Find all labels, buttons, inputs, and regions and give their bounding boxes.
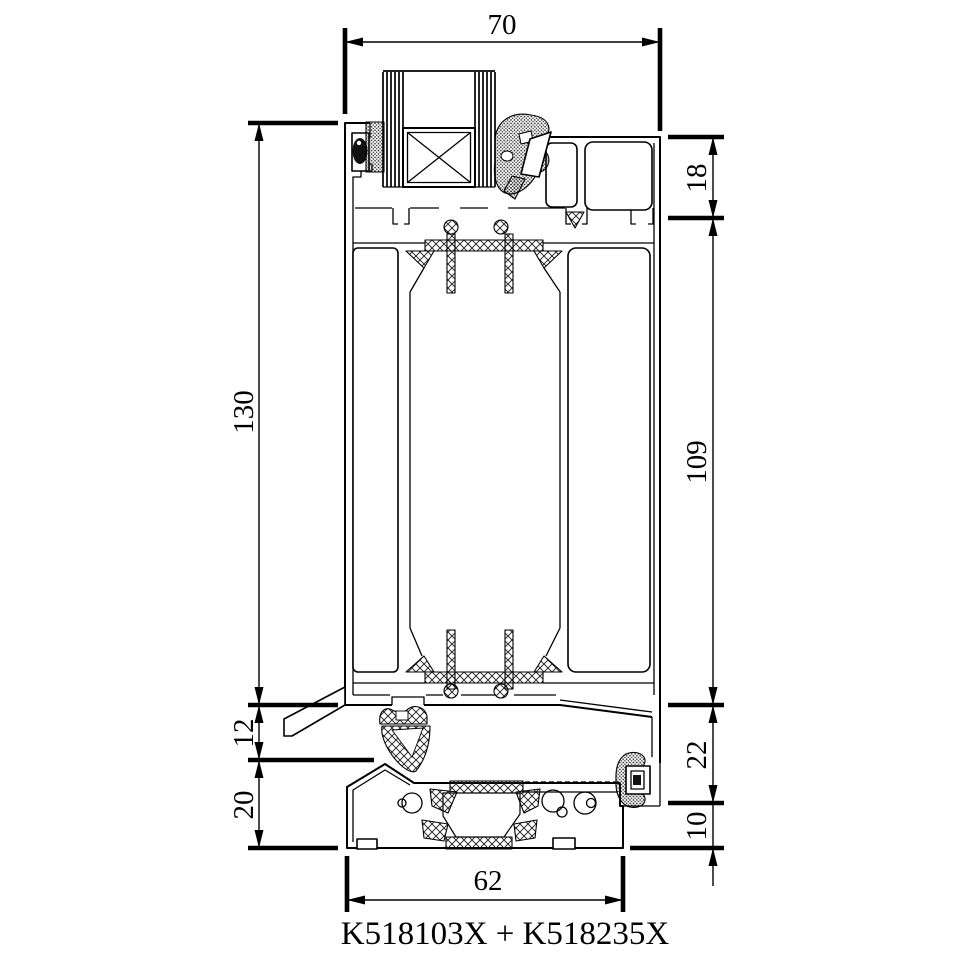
spacer-bar — [403, 128, 475, 187]
gasket-clip — [626, 766, 650, 794]
chamber-right — [568, 248, 650, 672]
screw-port-right-a — [542, 790, 564, 812]
foot-notch-left — [357, 839, 377, 849]
thermal-break-bottom — [406, 630, 562, 698]
foot-notch-right — [553, 838, 575, 849]
spacer-cross — [408, 133, 471, 183]
drawing-title: K518103X + K518235X — [341, 916, 670, 952]
center-gasket — [380, 707, 430, 772]
dim-upstand-height: 22 — [681, 741, 713, 770]
threshold-inner-wall — [353, 770, 410, 842]
screw-port-right-b — [574, 792, 596, 814]
dim-threshold-width: 62 — [474, 865, 503, 897]
screw-port-left — [402, 793, 422, 813]
glass-pane-left — [383, 72, 403, 187]
profile-section-drawing: 70 130 12 20 18 109 22 10 62 K518103X + … — [0, 0, 960, 960]
dim-base-height: 20 — [228, 791, 260, 820]
thermal-break-top — [406, 212, 584, 293]
dim-mid-height: 109 — [681, 440, 713, 484]
cavity-walls — [410, 268, 560, 656]
drip-fin — [284, 687, 345, 736]
gasket-hole — [501, 151, 513, 161]
glazing-gasket-left — [366, 122, 384, 172]
dim-threshold-base: 10 — [681, 812, 713, 841]
glass-unit — [383, 71, 495, 187]
gasket-head-slot — [396, 711, 408, 720]
glass-pane-right — [475, 72, 495, 187]
chamber-left — [353, 248, 398, 672]
threshold-upstand — [616, 717, 660, 807]
glazing-gasket-right — [494, 114, 551, 199]
dim-drip-height: 12 — [228, 719, 260, 748]
sash-profile — [345, 123, 660, 763]
chamber-top-a — [546, 143, 577, 207]
sealant-wedge — [566, 212, 584, 228]
threshold-break-bottom — [446, 837, 512, 849]
dim-overall-height: 130 — [228, 390, 260, 434]
drawing-canvas: 70 130 12 20 18 109 22 10 62 K518103X + … — [0, 0, 960, 960]
chamber-top-b — [585, 142, 652, 210]
threshold-break-top — [450, 781, 523, 793]
dim-top-chamber: 18 — [681, 164, 713, 193]
threshold-profile — [347, 764, 623, 849]
gasket-groove — [392, 697, 424, 705]
threshold-cavity — [443, 793, 520, 837]
dim-glazing-width: 70 — [488, 9, 517, 41]
